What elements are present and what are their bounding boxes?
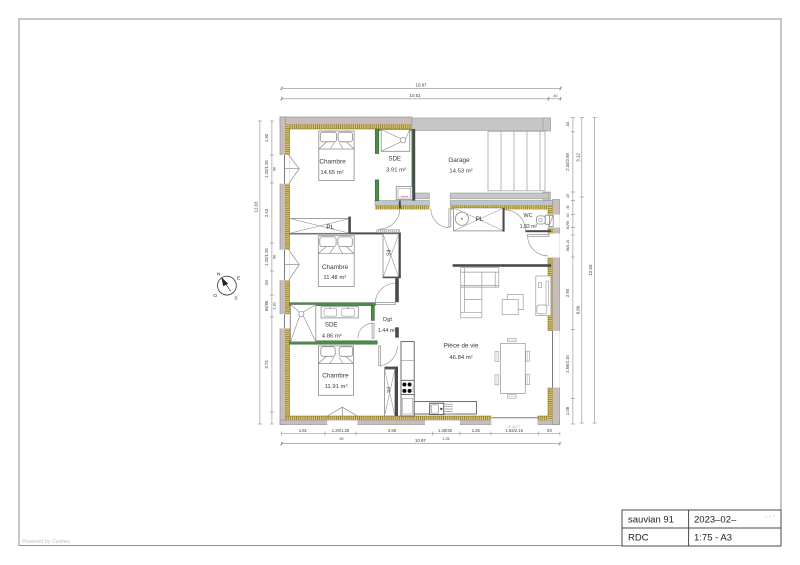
- svg-text:Sd: Sd: [386, 250, 392, 256]
- svg-text:46.84 m²: 46.84 m²: [449, 355, 472, 361]
- svg-text:1.20/1.25: 1.20/1.25: [264, 160, 269, 178]
- svg-text:2.58: 2.58: [388, 428, 397, 433]
- svg-text:Dgt: Dgt: [383, 317, 392, 323]
- svg-text:Chambre: Chambre: [319, 158, 346, 165]
- svg-text:1.40/35: 1.40/35: [438, 428, 453, 433]
- svg-text:2.43: 2.43: [264, 208, 269, 217]
- svg-text:11.91 m²: 11.91 m²: [325, 384, 348, 390]
- svg-text:93: 93: [547, 428, 552, 433]
- svg-text:.60: .60: [566, 213, 570, 218]
- svg-text:Pièce de vie: Pièce de vie: [444, 343, 479, 350]
- svg-text:10.51: 10.51: [410, 93, 422, 98]
- svg-text:Powered by Cedreo: Powered by Cedreo: [22, 539, 70, 545]
- svg-text:3.73: 3.73: [264, 360, 269, 369]
- svg-text:N: N: [217, 272, 221, 278]
- svg-text:1.20/1.25: 1.20/1.25: [264, 248, 269, 266]
- svg-text:SDE: SDE: [388, 156, 401, 163]
- svg-text:60/95: 60/95: [264, 300, 269, 311]
- svg-text:12.03: 12.03: [254, 201, 259, 213]
- svg-text:Chambre: Chambre: [322, 373, 349, 380]
- svg-text:S: S: [234, 296, 237, 302]
- svg-text:3.91 m²: 3.91 m²: [386, 168, 406, 174]
- svg-text:1.25: 1.25: [472, 428, 481, 433]
- svg-text:11.48 m²: 11.48 m²: [323, 275, 346, 281]
- svg-text:90: 90: [340, 437, 344, 441]
- svg-text:.44: .44: [565, 121, 570, 127]
- svg-text:10.97: 10.97: [415, 438, 427, 443]
- svg-text:2.69/2.15: 2.69/2.15: [565, 355, 570, 373]
- svg-text:90: 90: [273, 167, 277, 171]
- svg-text:12.03: 12.03: [588, 264, 593, 276]
- svg-text:3.12: 3.12: [575, 153, 580, 162]
- svg-text:1.20: 1.20: [273, 303, 277, 310]
- svg-text:1.08: 1.08: [565, 406, 570, 415]
- svg-text:14.53 m²: 14.53 m²: [449, 168, 472, 174]
- svg-text:10.97: 10.97: [416, 83, 428, 88]
- svg-text:.94: .94: [264, 279, 269, 285]
- svg-text:Sd: Sd: [386, 387, 391, 393]
- svg-text:2R 04/2T: 2R 04/2T: [507, 425, 520, 429]
- svg-text:WC: WC: [523, 213, 532, 219]
- svg-text:E: E: [237, 276, 240, 282]
- svg-text:PL: PL: [326, 224, 334, 231]
- svg-text:8.86: 8.86: [575, 305, 580, 314]
- svg-text:SDE: SDE: [325, 321, 338, 328]
- svg-text:O: O: [213, 293, 217, 299]
- svg-text:2023–02–: 2023–02–: [694, 515, 737, 526]
- svg-text:1.30: 1.30: [264, 133, 269, 142]
- svg-text:90: 90: [273, 255, 277, 259]
- svg-text:.25: .25: [566, 194, 570, 199]
- svg-text:4.86 m²: 4.86 m²: [322, 334, 342, 340]
- svg-text:1.25: 1.25: [443, 437, 450, 441]
- svg-text:.40: .40: [566, 205, 570, 210]
- svg-text:sauvian 91: sauvian 91: [628, 515, 674, 526]
- svg-text:1.44 m²: 1.44 m²: [378, 328, 397, 334]
- svg-text:.40: .40: [553, 94, 558, 98]
- svg-text:.98/2.15: .98/2.15: [566, 240, 570, 252]
- svg-text:1.20/1.25: 1.20/1.25: [332, 428, 350, 433]
- svg-text:2.90: 2.90: [565, 288, 570, 297]
- svg-text:1:75 - A3: 1:75 - A3: [694, 533, 732, 544]
- svg-text:PL: PL: [476, 216, 484, 223]
- svg-text:1.82 m²: 1.82 m²: [520, 224, 538, 230]
- svg-text:2.40/2.69: 2.40/2.69: [565, 153, 570, 171]
- svg-text:Chambre: Chambre: [322, 264, 349, 271]
- svg-text:80/95: 80/95: [566, 221, 570, 230]
- svg-text:1.81: 1.81: [299, 428, 308, 433]
- svg-text:RDC: RDC: [628, 533, 649, 544]
- svg-text:14.65 m²: 14.65 m²: [320, 170, 343, 176]
- svg-text:Garage: Garage: [448, 157, 470, 164]
